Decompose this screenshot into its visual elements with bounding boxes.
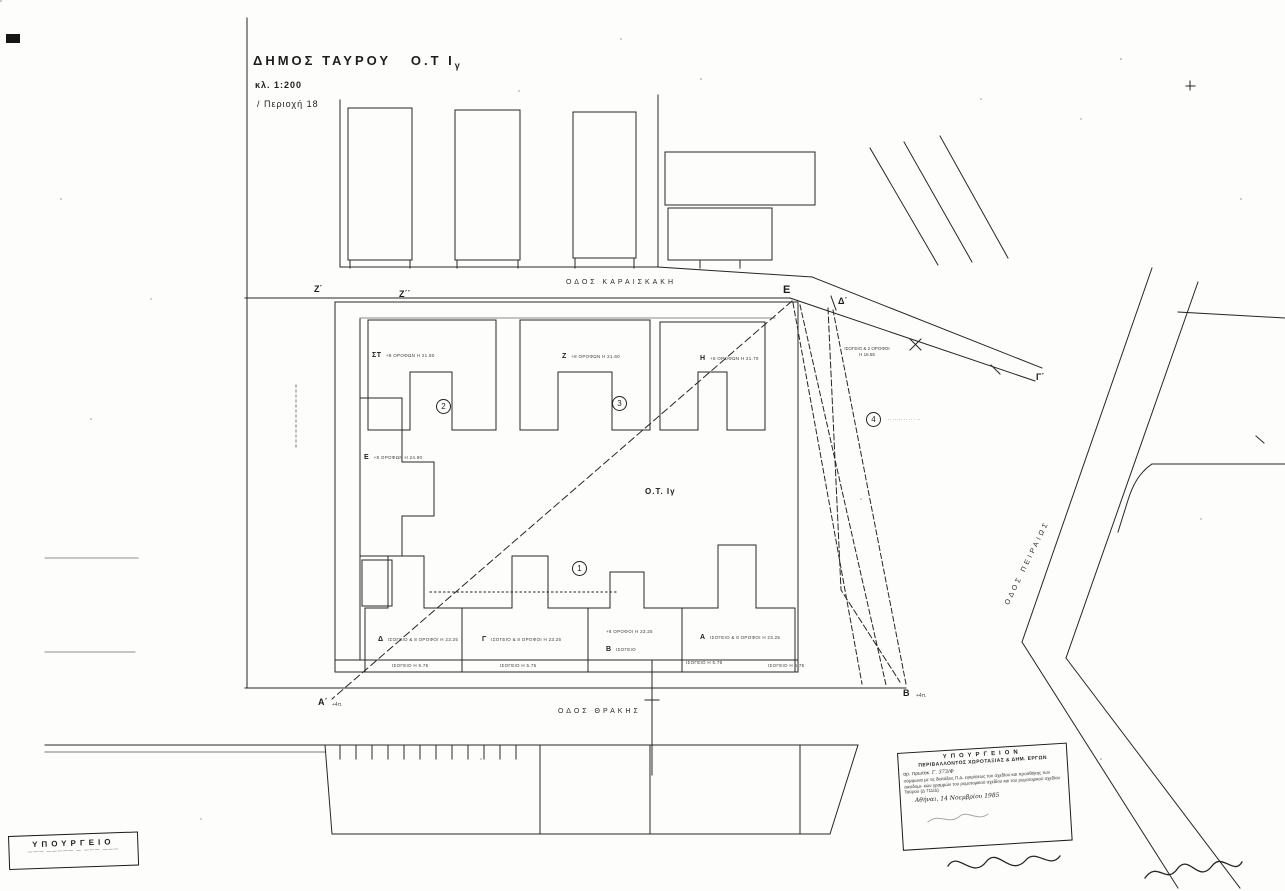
ground-floor-note: ΙΣΟΓΕΙΟ Η 5.75 [768, 663, 804, 668]
ministry-stamp-small: ΥΠΟΥΡΓΕΙΟ ——— ————— — ——— ——— [8, 831, 139, 870]
ground-floor-note: ΙΣΟΓΕΙΟ Η 5.75 [686, 660, 722, 665]
building-name-e: Ε [364, 454, 369, 461]
building-label-st: ΣΤ +8 ΟΡΟΦΩΝ Η 21.90 [372, 344, 435, 362]
zone-circle-4: 4 [866, 412, 881, 427]
zone-circle-3: 3 [612, 396, 627, 411]
page-title: ΔΗΜΟΣ ΤΑΥΡΟΥ Ο.Τ Ιγ [253, 54, 460, 71]
point-label-z-double-prime: Ζ΄΄ [399, 289, 411, 299]
building-label-z: Ζ +8 ΟΡΟΦΩΝ Η 21.60 [562, 345, 620, 363]
building-label-b: +8 ΟΡΟΦΟΙ Η 23.25 Β ΙΣΟΓΕΙΟ [606, 620, 653, 657]
block-label: Ο.Τ. Ιγ [645, 487, 676, 496]
point-label-a-prime: Α΄ [318, 697, 328, 707]
point-note-b: +4π. [916, 694, 927, 700]
stamp-body-line: (Δ 711/Δ) [920, 788, 939, 794]
title-municipality: ΔΗΜΟΣ ΤΑΥΡΟΥ [253, 53, 391, 68]
building-info-h: +8 ΟΡΟΦΩΝ Η 21.70 [710, 356, 759, 361]
building-name-d: Δ [378, 636, 384, 643]
street-label-karaiskaki: ΟΔΟΣ ΚΑΡΑΙΣΚΑΚΗ [566, 279, 676, 287]
area-note: / Περιοχή 18 [257, 99, 319, 109]
title-block-number: Ο.Τ Ι [411, 53, 455, 68]
building-name-z: Ζ [562, 353, 567, 360]
building-footprints [360, 320, 795, 672]
building-info-a: ΙΣΟΓΕΙΟ & 8 ΟΡΟΦΟΙ Η 23.25 [710, 635, 780, 640]
building-label-a: Α ΙΣΟΓΕΙΟ & 8 ΟΡΟΦΟΙ Η 23.25 [700, 626, 780, 644]
section-line [645, 660, 659, 775]
point-label-d-prime: Δ΄ [838, 296, 847, 306]
ministry-stamp: ΥΠΟΥΡΓΕΙΟΝ ΠΕΡΙΒΑΛΛΟΝΤΟΣ ΧΩΡΟΤΑΞΙΑΣ & ΔΗ… [897, 743, 1073, 851]
two-storey-height: Η 16.55 [859, 352, 875, 357]
building-info-e: +8 ΟΡΟΦΩΝ Η 24.90 [374, 455, 423, 460]
drawing-sheet: ΔΗΜΟΣ ΤΑΥΡΟΥ Ο.Τ Ιγ κλ. 1:200 / Περιοχή … [0, 0, 1285, 891]
south-buildings [325, 745, 858, 834]
building-info-st: +8 ΟΡΟΦΩΝ Η 21.90 [386, 353, 435, 358]
scan-noise [0, 0, 2, 2]
building-name-g: Γ [482, 636, 487, 643]
building-label-e: Ε +8 ΟΡΟΦΩΝ Η 24.90 [364, 446, 422, 464]
building-name-st: ΣΤ [372, 352, 381, 359]
building-info2-b: ΙΣΟΓΕΙΟ [616, 647, 636, 652]
northeast-diagonals [870, 81, 1285, 318]
building-info-b: +8 ΟΡΟΦΟΙ Η 23.25 [606, 629, 653, 634]
corner-registration-mark [6, 34, 20, 43]
building-info-d: ΙΣΟΓΕΙΟ & 8 ΟΡΟΦΟΙ Η 23.25 [388, 637, 458, 642]
ground-floor-note: ΙΣΟΓΕΙΟ Η 5.75 [392, 663, 428, 668]
building-label-g: Γ ΙΣΟΓΕΙΟ & 8 ΟΡΟΦΟΙ Η 23.25 [482, 628, 561, 646]
building-info-g: ΙΣΟΓΕΙΟ & 8 ΟΡΟΦΟΙ Η 23.25 [491, 637, 561, 642]
scale-note: κλ. 1:200 [255, 80, 302, 90]
building-name-b: Β [606, 646, 612, 653]
building-name-h: Η [700, 355, 706, 362]
two-storey-annotation: ΙΣΟΓΕΙΟ & 2 ΟΡΟΦΟΙ Η 16.55 [832, 346, 902, 358]
zone-4-annotation: ·· ····· ·· ·· · ·· [888, 417, 921, 422]
zone-circle-1: 1 [572, 561, 587, 576]
building-name-a: Α [700, 634, 706, 641]
zone-circle-2: 2 [436, 399, 451, 414]
point-label-b: Β [903, 688, 910, 698]
point-label-z-prime: Ζ΄ [314, 284, 323, 294]
north-buildings [348, 108, 815, 268]
building-label-h: Η +8 ΟΡΟΦΩΝ Η 21.70 [700, 347, 759, 365]
point-note-a-prime: +4π. [332, 703, 343, 709]
building-info-z: +8 ΟΡΟΦΩΝ Η 21.60 [571, 354, 620, 359]
two-storey-text: ΙΣΟΓΕΙΟ & 2 ΟΡΟΦΟΙ [844, 346, 889, 351]
point-label-g-prime: Γ΄ [1036, 372, 1044, 382]
plan-linework [0, 0, 1285, 891]
street-label-thrakis: ΟΔΟΣ ΘΡΑΚΗΣ [558, 708, 641, 716]
title-block-subscript: γ [455, 61, 460, 71]
point-label-e: Ε [783, 284, 790, 297]
building-label-d: Δ ΙΣΟΓΕΙΟ & 8 ΟΡΟΦΟΙ Η 23.25 [378, 628, 458, 646]
ground-floor-note: ΙΣΟΓΕΙΟ Η 5.75 [500, 663, 536, 668]
